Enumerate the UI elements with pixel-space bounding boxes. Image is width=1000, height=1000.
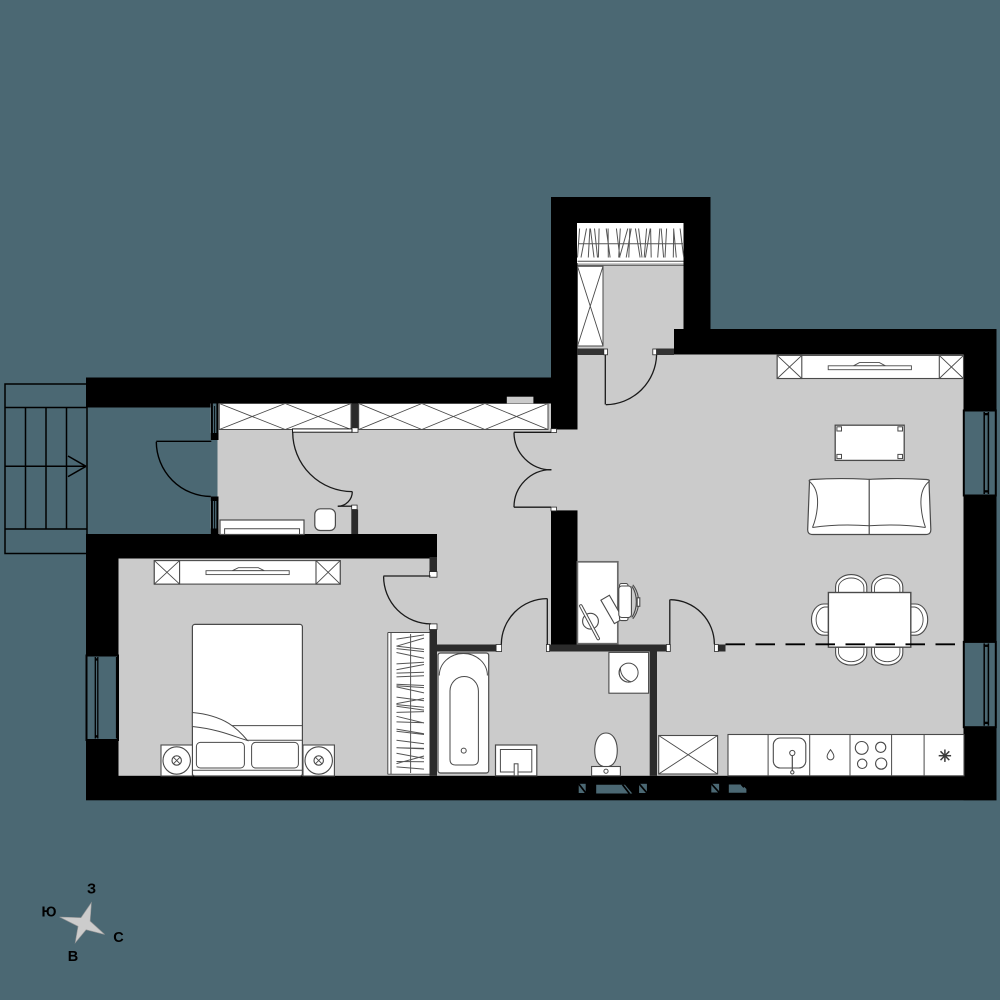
svg-text:Ю: Ю (42, 905, 57, 921)
svg-text:В: В (68, 949, 78, 965)
svg-text:С: С (113, 930, 124, 946)
svg-text:З: З (87, 882, 96, 898)
